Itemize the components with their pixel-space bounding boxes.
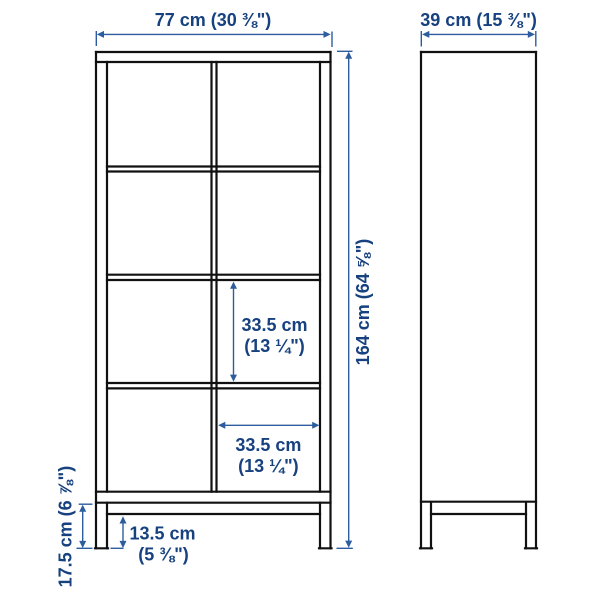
svg-text:(13 ¼"): (13 ¼") bbox=[244, 336, 305, 356]
svg-text:(13 ¼"): (13 ¼") bbox=[238, 456, 299, 476]
svg-text:39 cm (15 ⅜"): 39 cm (15 ⅜") bbox=[420, 10, 537, 30]
svg-text:77 cm (30 ⅜"): 77 cm (30 ⅜") bbox=[155, 10, 272, 30]
svg-text:13.5 cm: 13.5 cm bbox=[129, 523, 195, 543]
svg-text:33.5 cm: 33.5 cm bbox=[235, 435, 301, 455]
svg-text:17.5 cm (6 ⅞"): 17.5 cm (6 ⅞") bbox=[56, 466, 76, 588]
svg-text:164 cm (64 ⅝"): 164 cm (64 ⅝") bbox=[353, 239, 373, 366]
svg-text:33.5 cm: 33.5 cm bbox=[241, 315, 307, 335]
svg-text:(5 ⅜"): (5 ⅜") bbox=[138, 545, 189, 565]
